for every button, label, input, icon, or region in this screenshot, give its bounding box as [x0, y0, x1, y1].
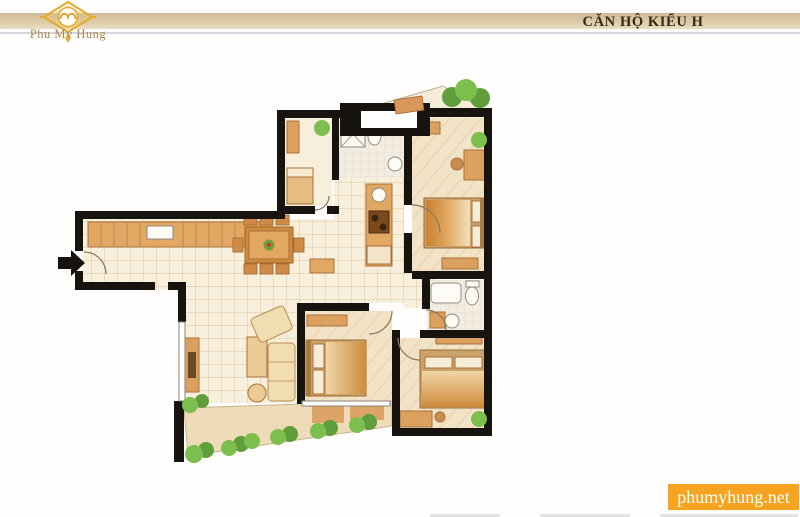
page: Phu My Hung CĂN HỘ KIỂU H [0, 0, 800, 517]
watermark-link[interactable]: phumyhung.net [668, 484, 799, 510]
floor-plan [0, 0, 800, 517]
shaft [361, 111, 417, 128]
kitchen-counter [88, 222, 272, 247]
galley-counter [366, 184, 392, 266]
